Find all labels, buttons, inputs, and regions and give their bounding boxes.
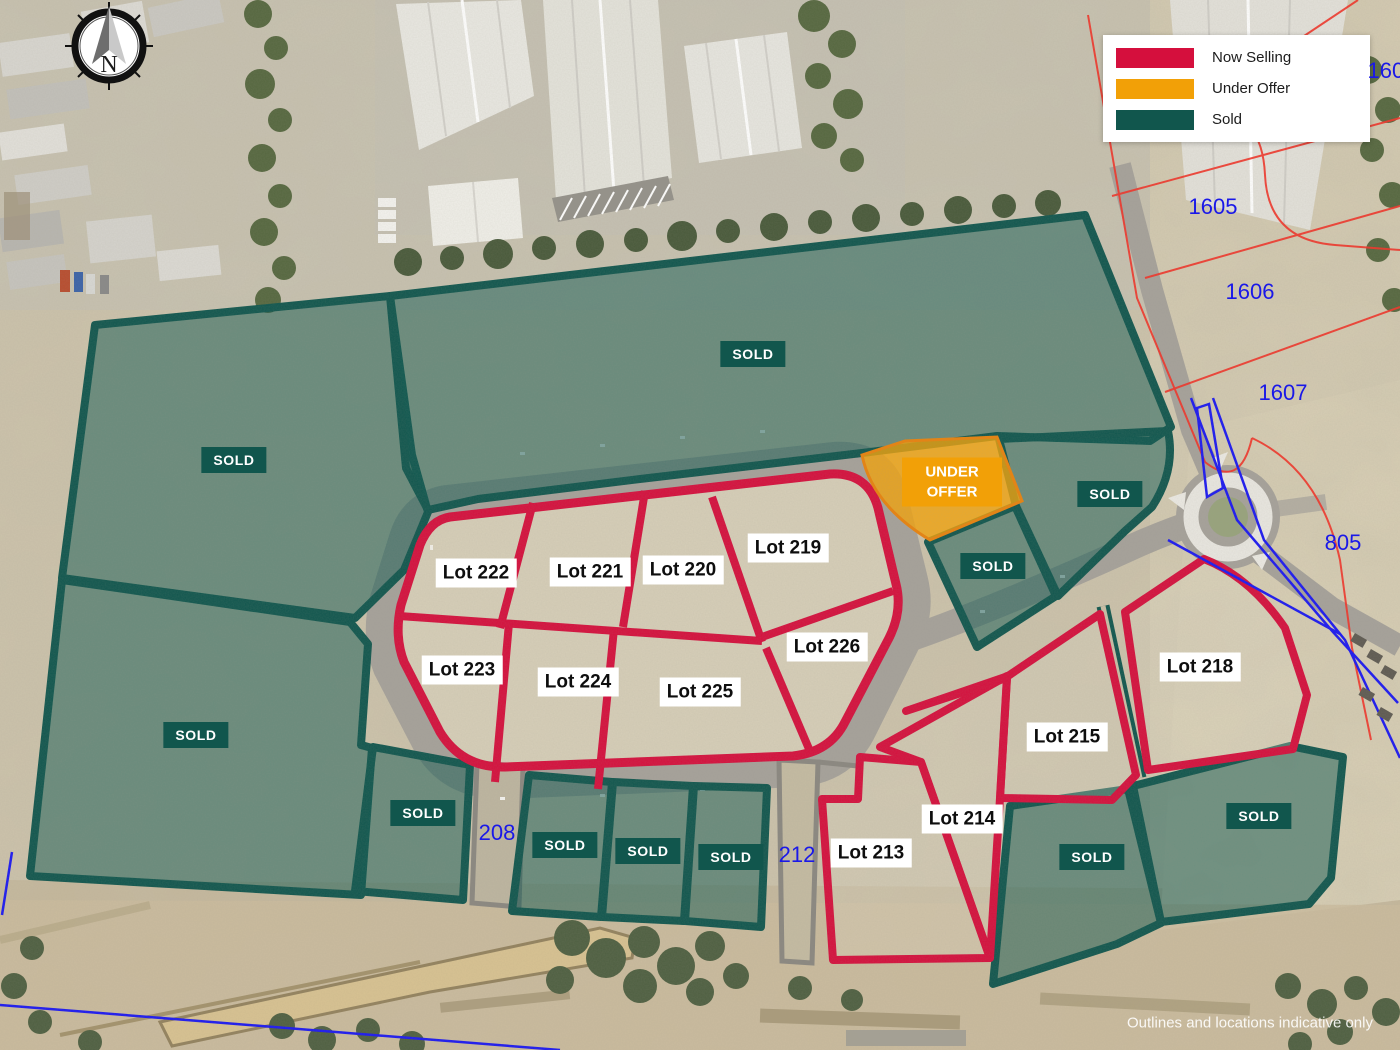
- compass-n: N: [100, 52, 117, 78]
- lot-label-lot-224: Lot 224: [538, 668, 619, 697]
- sold-label: SOLD: [201, 447, 266, 473]
- under-offer-swatch: [1116, 79, 1194, 99]
- lot-label-lot-221: Lot 221: [550, 558, 631, 587]
- lot-label-lot-226: Lot 226: [787, 633, 868, 662]
- sold-swatch: [1116, 110, 1194, 130]
- lot-label-lot-219: Lot 219: [748, 534, 829, 563]
- sold-label: SOLD: [960, 553, 1025, 579]
- now-selling-swatch: [1116, 48, 1194, 68]
- estate-sales-map: N Now Selling Under Offer Sold Lot 222Lo…: [0, 0, 1400, 1050]
- lot-label-lot-218: Lot 218: [1160, 653, 1241, 682]
- sold-label: SOLD: [1059, 844, 1124, 870]
- legend-label: Now Selling: [1212, 49, 1291, 66]
- legend-row-now-selling: Now Selling: [1116, 48, 1370, 68]
- sold-label: SOLD: [1077, 481, 1142, 507]
- under-offer-label: UNDER OFFER: [902, 458, 1002, 507]
- sold-label: SOLD: [1226, 803, 1291, 829]
- legend-row-sold: Sold: [1116, 110, 1370, 130]
- aerial-map: [0, 0, 1400, 1050]
- sold-label: SOLD: [163, 722, 228, 748]
- legend-label: Under Offer: [1212, 80, 1290, 97]
- sold-label: SOLD: [698, 844, 763, 870]
- lot-label-lot-214: Lot 214: [922, 805, 1003, 834]
- lot-label-lot-213: Lot 213: [831, 839, 912, 868]
- cadastral-number-212: 212: [779, 842, 816, 868]
- lot-label-lot-215: Lot 215: [1027, 723, 1108, 752]
- legend-label: Sold: [1212, 111, 1242, 128]
- legend: Now Selling Under Offer Sold: [1103, 35, 1370, 142]
- legend-row-under-offer: Under Offer: [1116, 79, 1370, 99]
- lot-label-lot-223: Lot 223: [422, 656, 503, 685]
- cadastral-number-208: 208: [479, 820, 516, 846]
- disclaimer-text: Outlines and locations indicative only: [1127, 1015, 1373, 1032]
- sold-label: SOLD: [390, 800, 455, 826]
- sold-label: SOLD: [532, 832, 597, 858]
- grain-overlay: [0, 0, 1400, 1050]
- lot-label-lot-220: Lot 220: [643, 556, 724, 585]
- cadastral-number-1605: 1605: [1189, 194, 1238, 220]
- lot-label-lot-222: Lot 222: [436, 559, 517, 588]
- compass-rose: N: [64, 0, 154, 92]
- cadastral-number-1603: 1603: [1368, 58, 1400, 84]
- cadastral-number-1607: 1607: [1259, 380, 1308, 406]
- cadastral-number-805: 805: [1325, 530, 1362, 556]
- sold-label: SOLD: [615, 838, 680, 864]
- lot-label-lot-225: Lot 225: [660, 678, 741, 707]
- cadastral-number-1606: 1606: [1226, 279, 1275, 305]
- sold-label: SOLD: [720, 341, 785, 367]
